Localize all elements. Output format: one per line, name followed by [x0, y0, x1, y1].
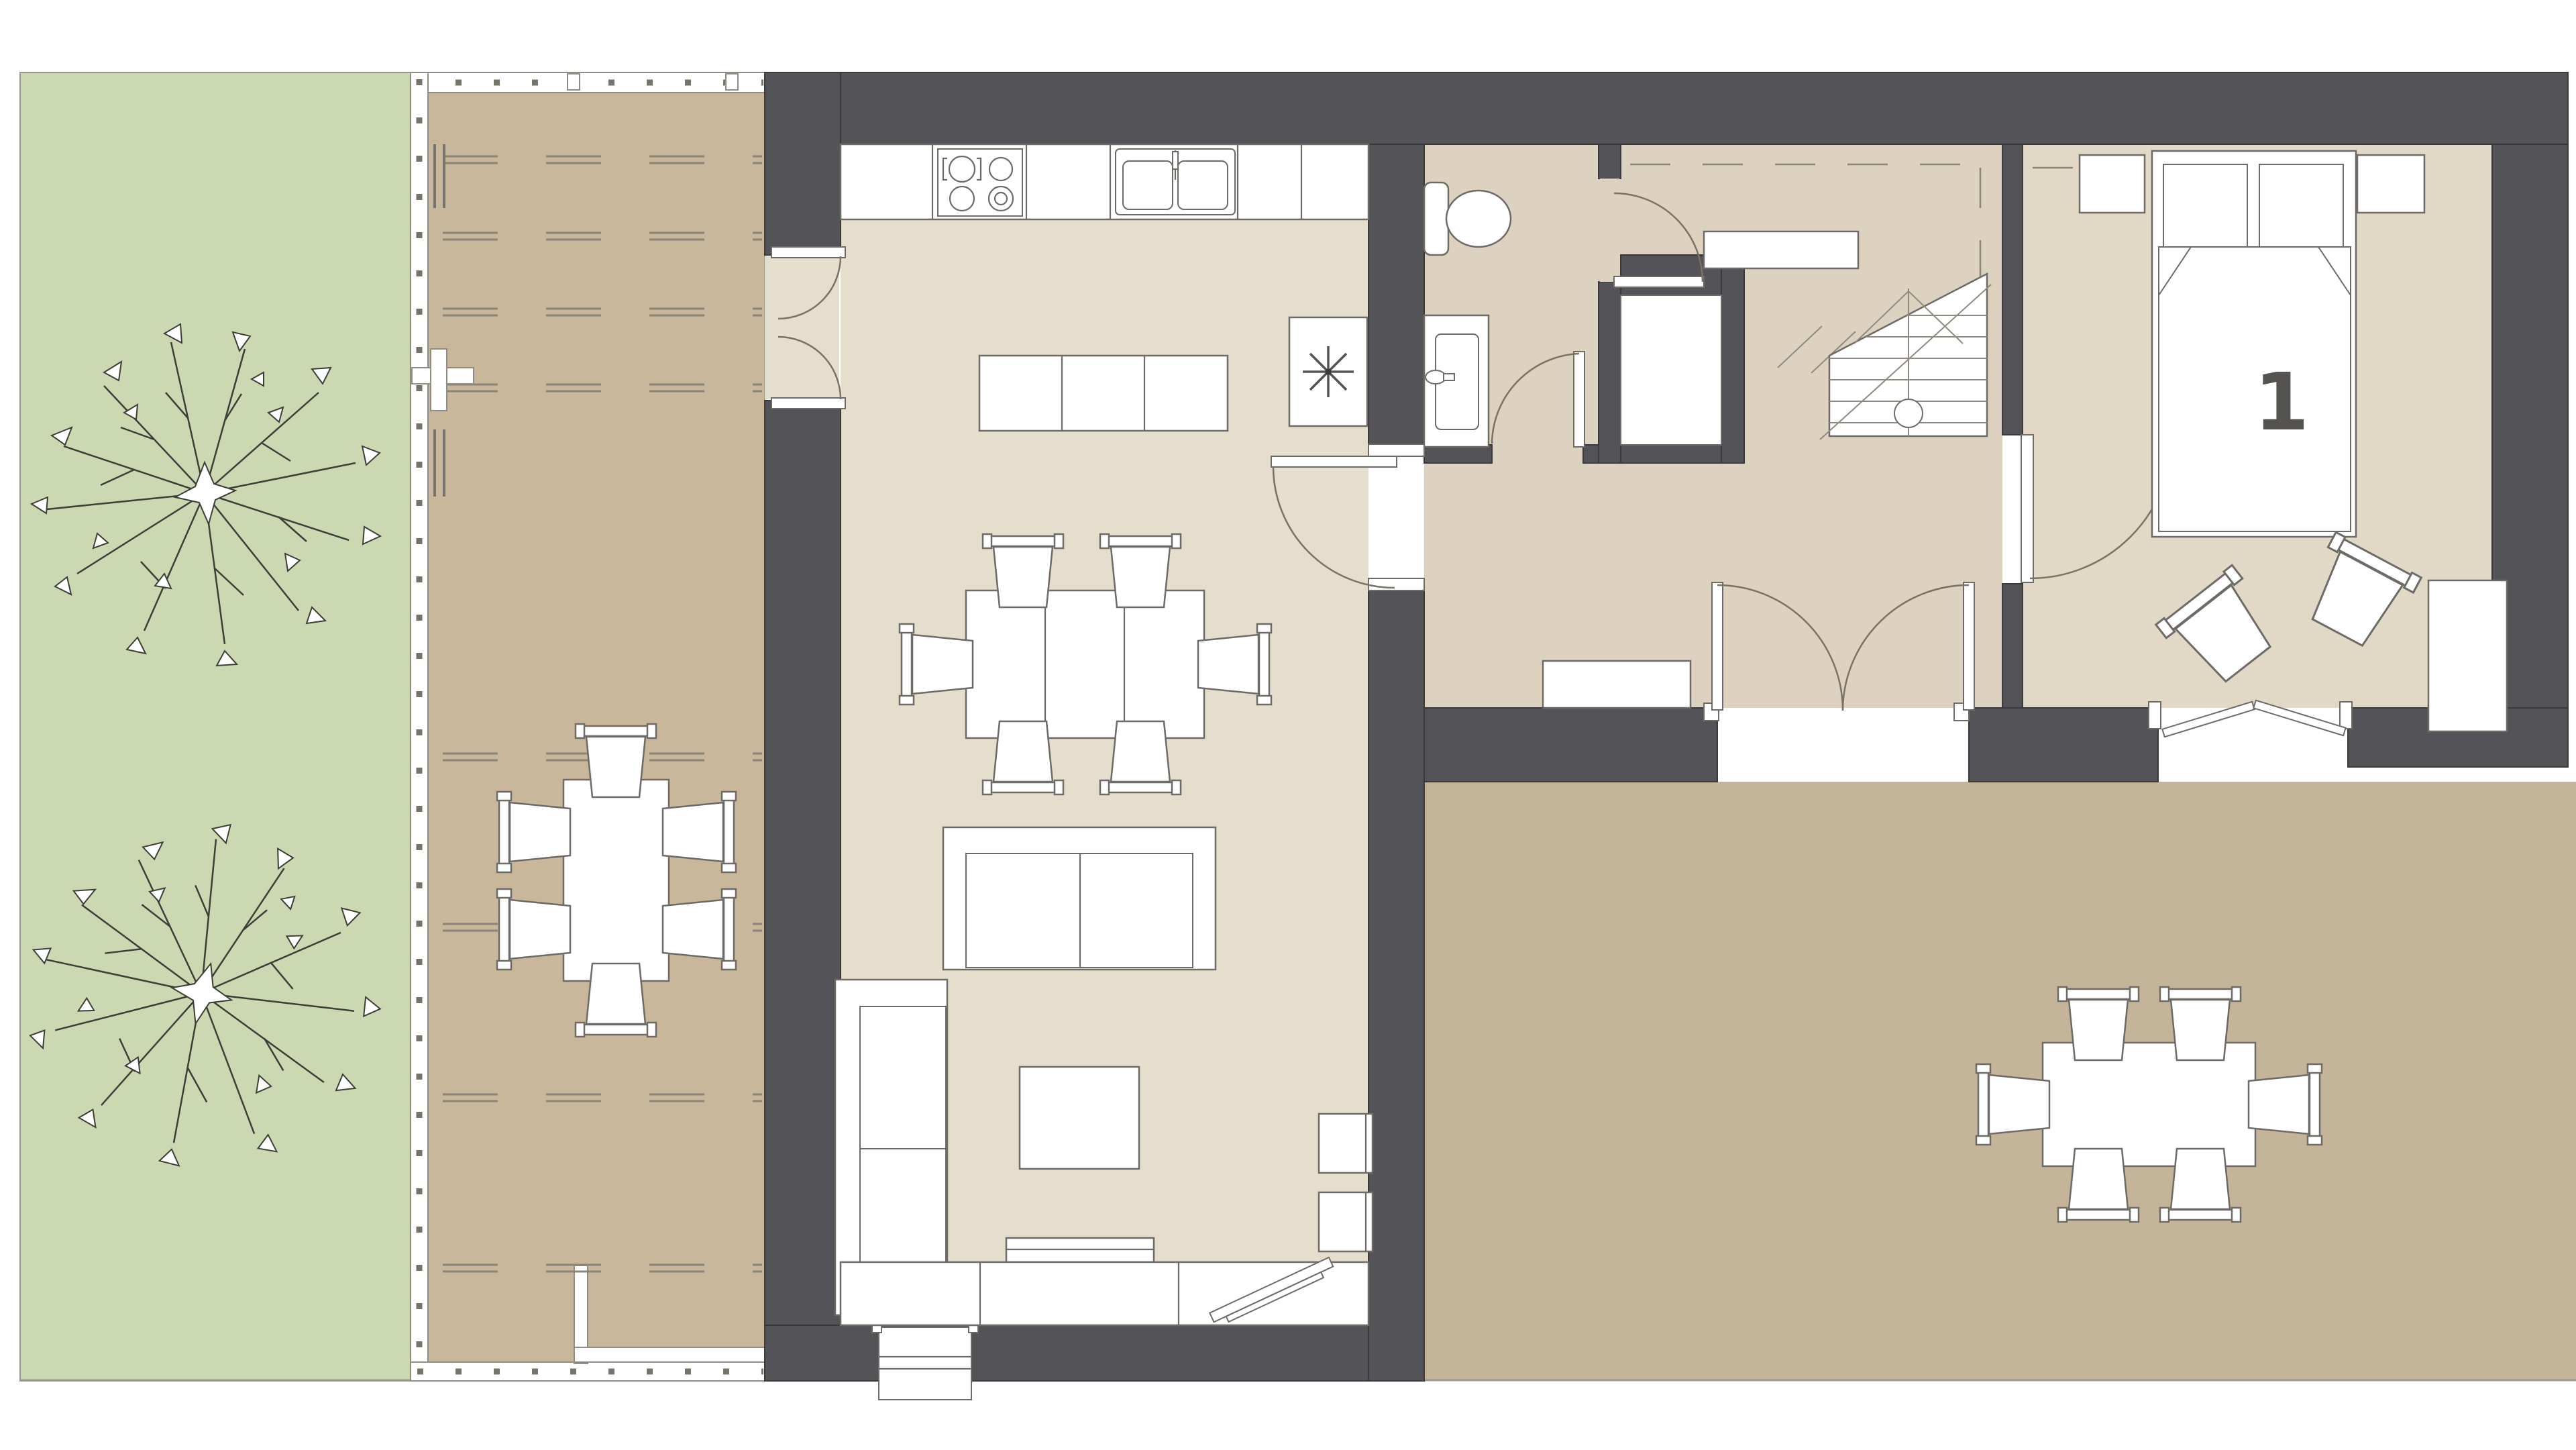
wall-left-upper — [765, 72, 841, 255]
dining-table — [966, 590, 1204, 738]
kitchen-counter — [841, 144, 1368, 219]
stove-cooktop — [938, 149, 1022, 216]
vanity-faucet-handle — [1444, 374, 1454, 380]
closet-floor — [1621, 295, 1721, 445]
wall-living-bottom — [765, 1325, 1424, 1381]
fireplace-stove — [1289, 317, 1367, 426]
sofa — [943, 827, 1216, 970]
wall-hall-bottom-left — [1424, 708, 1717, 782]
kitchen-island — [979, 356, 1228, 431]
bottom-cabinet-row — [841, 1257, 1368, 1328]
kitchen-french-doors — [766, 247, 845, 409]
terrace-outdoor-table — [2043, 1043, 2255, 1166]
hall-sideboard — [1543, 661, 1690, 708]
wall-living-right-lower — [1368, 580, 1424, 1381]
floor-plan-page: 1 — [0, 0, 2576, 1450]
deck-outdoor-table — [563, 780, 669, 981]
tv-bench — [1006, 1238, 1154, 1262]
floor-plan-drawing: 1 — [0, 0, 2576, 1450]
wall-bath-partition-lower — [1599, 282, 1621, 463]
wall-bath-partition-upper — [1599, 144, 1621, 178]
wall-closet-right — [1721, 255, 1744, 463]
wall-left-lower — [765, 401, 841, 1381]
stair-newel-post — [1894, 399, 1923, 427]
nightstand-right — [2357, 155, 2424, 213]
wardrobe — [2428, 580, 2507, 731]
wall-hall-bottom-right — [1969, 708, 2158, 782]
garden-area — [20, 72, 411, 1381]
deck-rail-horizontal — [574, 1347, 765, 1362]
bathroom-vanity — [1424, 315, 1489, 447]
wall-living-right-upper — [1368, 144, 1424, 456]
kitchen-sink — [1116, 149, 1235, 215]
vanity-faucet — [1426, 370, 1446, 384]
stair-landing-shelf — [1704, 231, 1858, 268]
pillow-left — [2163, 164, 2247, 248]
double-bed — [2152, 151, 2356, 537]
wall-bedroom-left-upper — [2002, 144, 2023, 435]
wall-bedroom-left-lower — [2002, 584, 2023, 708]
nightstand-left — [2080, 155, 2145, 213]
coffee-table — [1020, 1067, 1139, 1169]
entry-porch — [872, 1320, 978, 1400]
wall-top — [765, 72, 2568, 144]
pillow-right — [2259, 164, 2343, 248]
bedroom-number-label: 1 — [2254, 356, 2309, 448]
